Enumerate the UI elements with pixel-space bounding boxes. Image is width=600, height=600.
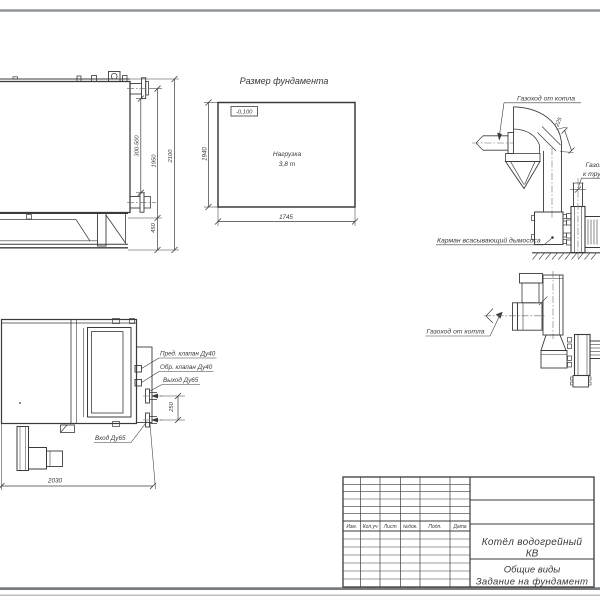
dim-pipe-spacing: 250 <box>169 401 175 412</box>
label-outlet: Выход Ду65 <box>163 376 199 384</box>
tb-header-ndok: №док. <box>403 524 418 530</box>
flue-label-to-chimney-2: к трубе <box>583 170 600 178</box>
boiler-plan-view: 250 Пред. клапан Ду40 Обр. клапан Ду40 В… <box>0 319 217 491</box>
doc-view-type: Общие виды <box>504 565 561 576</box>
tb-header-izm: Изм. <box>346 524 357 530</box>
boiler-side-view: 300-500 1950 450 2100 <box>0 72 179 254</box>
safety-valve-box <box>109 72 121 82</box>
dim-length: 2030 <box>47 478 63 485</box>
drawing-sheet: 300-500 1950 450 2100 Размер фундамента … <box>0 0 600 600</box>
foundation-dim-height: 1940 <box>201 147 208 161</box>
drawing-canvas: 300-500 1950 450 2100 Размер фундамента … <box>0 0 600 600</box>
load-label-2: 3,8 т <box>279 161 296 168</box>
tb-header-podp: Подп. <box>428 524 441 530</box>
fan-motor <box>585 217 600 248</box>
dim-height-to-flange: 1950 <box>151 154 157 168</box>
flue-elevation-view: Газоход от котла 225 <box>436 95 600 260</box>
dim-base-height: 450 <box>151 222 157 232</box>
dim-total-height: 2100 <box>168 149 174 164</box>
label-safety-valve: Пред. клапан Ду40 <box>160 350 216 358</box>
foundation-dim-width: 1745 <box>279 214 293 221</box>
doc-title-line1: Котёл водогрейный <box>482 537 583 548</box>
label-inlet: Вход Ду65 <box>95 434 126 442</box>
foundation-title: Размер фундамента <box>240 76 329 86</box>
fan-motor-plan <box>590 341 600 359</box>
flue-plan-view: Газоход от котла <box>426 271 600 387</box>
foundation-plan: Размер фундамента -0,100 Нагрузка 3,8 т … <box>201 76 358 226</box>
label-check-valve: Обр. клапан Ду40 <box>160 363 213 371</box>
doc-subtitle: Задание на фундамент <box>476 577 588 588</box>
flue-label-pocket: Карман всасывающий дымососа <box>437 237 541 245</box>
title-block: Изм. Кол.уч Лист №док. Подп. Дата Котёл … <box>343 477 594 588</box>
load-label-1: Нагрузка <box>273 151 302 158</box>
level-mark: -0,100 <box>236 110 253 116</box>
doc-title-line2: КВ <box>526 549 539 560</box>
flue-dim-duct: 225 <box>554 116 564 129</box>
dim-nozzle-range: 300-500 <box>135 135 141 157</box>
flue-plan-label: Газоход от котла <box>427 328 485 336</box>
tb-header-list: Лист <box>383 524 397 530</box>
smoke-exhauster-fan-plan <box>575 335 591 376</box>
tb-header-data: Дата <box>452 524 466 530</box>
tb-header-koluch: Кол.уч <box>363 524 378 530</box>
flue-label-to-chimney-1: Газоход <box>586 161 600 169</box>
flue-label-from-boiler: Газоход от котла <box>517 95 575 103</box>
burner <box>17 427 29 471</box>
